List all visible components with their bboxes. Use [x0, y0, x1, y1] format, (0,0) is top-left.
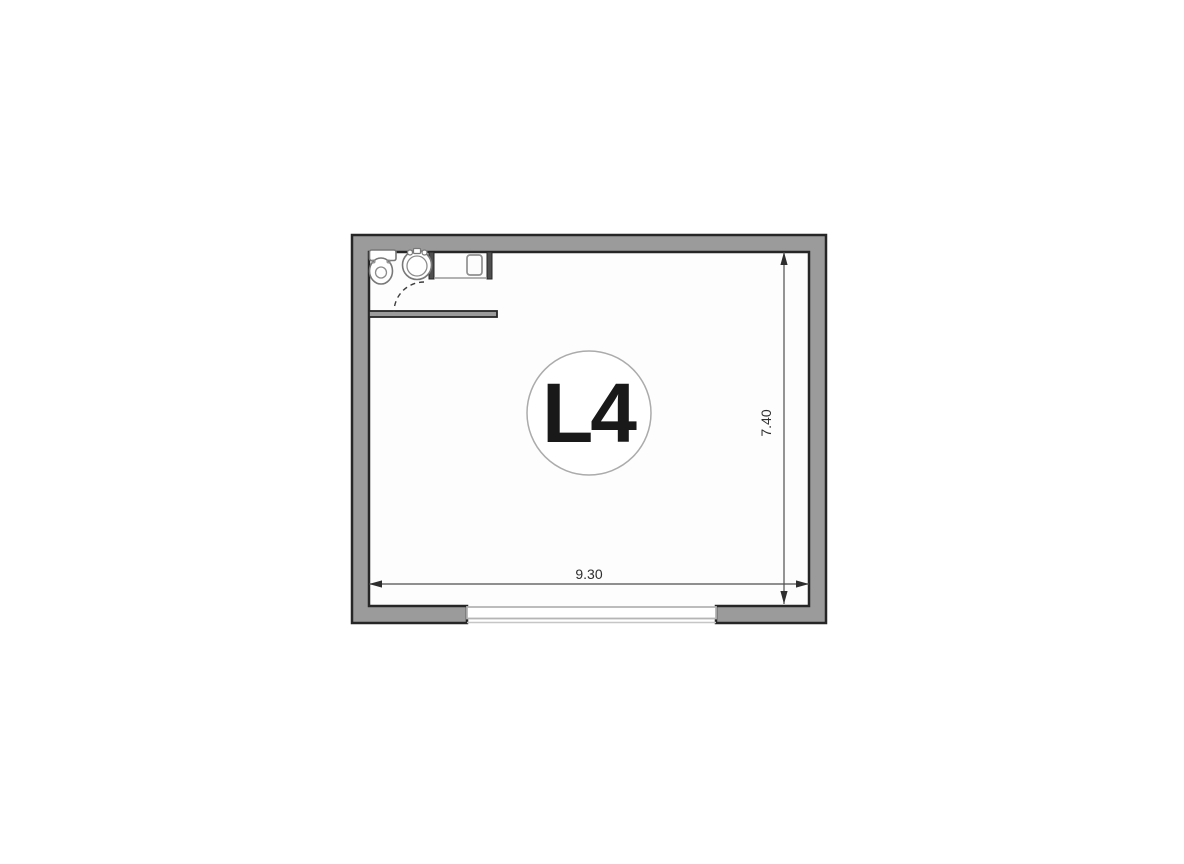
room-label: L4	[542, 366, 637, 460]
sink-knob-right	[422, 250, 427, 255]
window-glass-frame	[467, 607, 716, 619]
appliance-icon	[467, 255, 482, 275]
room-label-group: L4	[527, 351, 651, 475]
height-dimension-label: 7.40	[758, 409, 774, 436]
sink-knob-left	[408, 250, 413, 255]
floor-plan-canvas: L4 9.30 7.40	[0, 0, 1184, 864]
sink-spout	[414, 249, 421, 254]
toilet-bowl	[370, 258, 393, 284]
partition-stub-right	[487, 252, 492, 279]
width-dimension-label: 9.30	[575, 566, 602, 582]
window-opening	[467, 607, 716, 623]
floor-plan-drawing: L4 9.30 7.40	[0, 0, 1184, 864]
bathroom-lower-wall	[369, 311, 497, 317]
